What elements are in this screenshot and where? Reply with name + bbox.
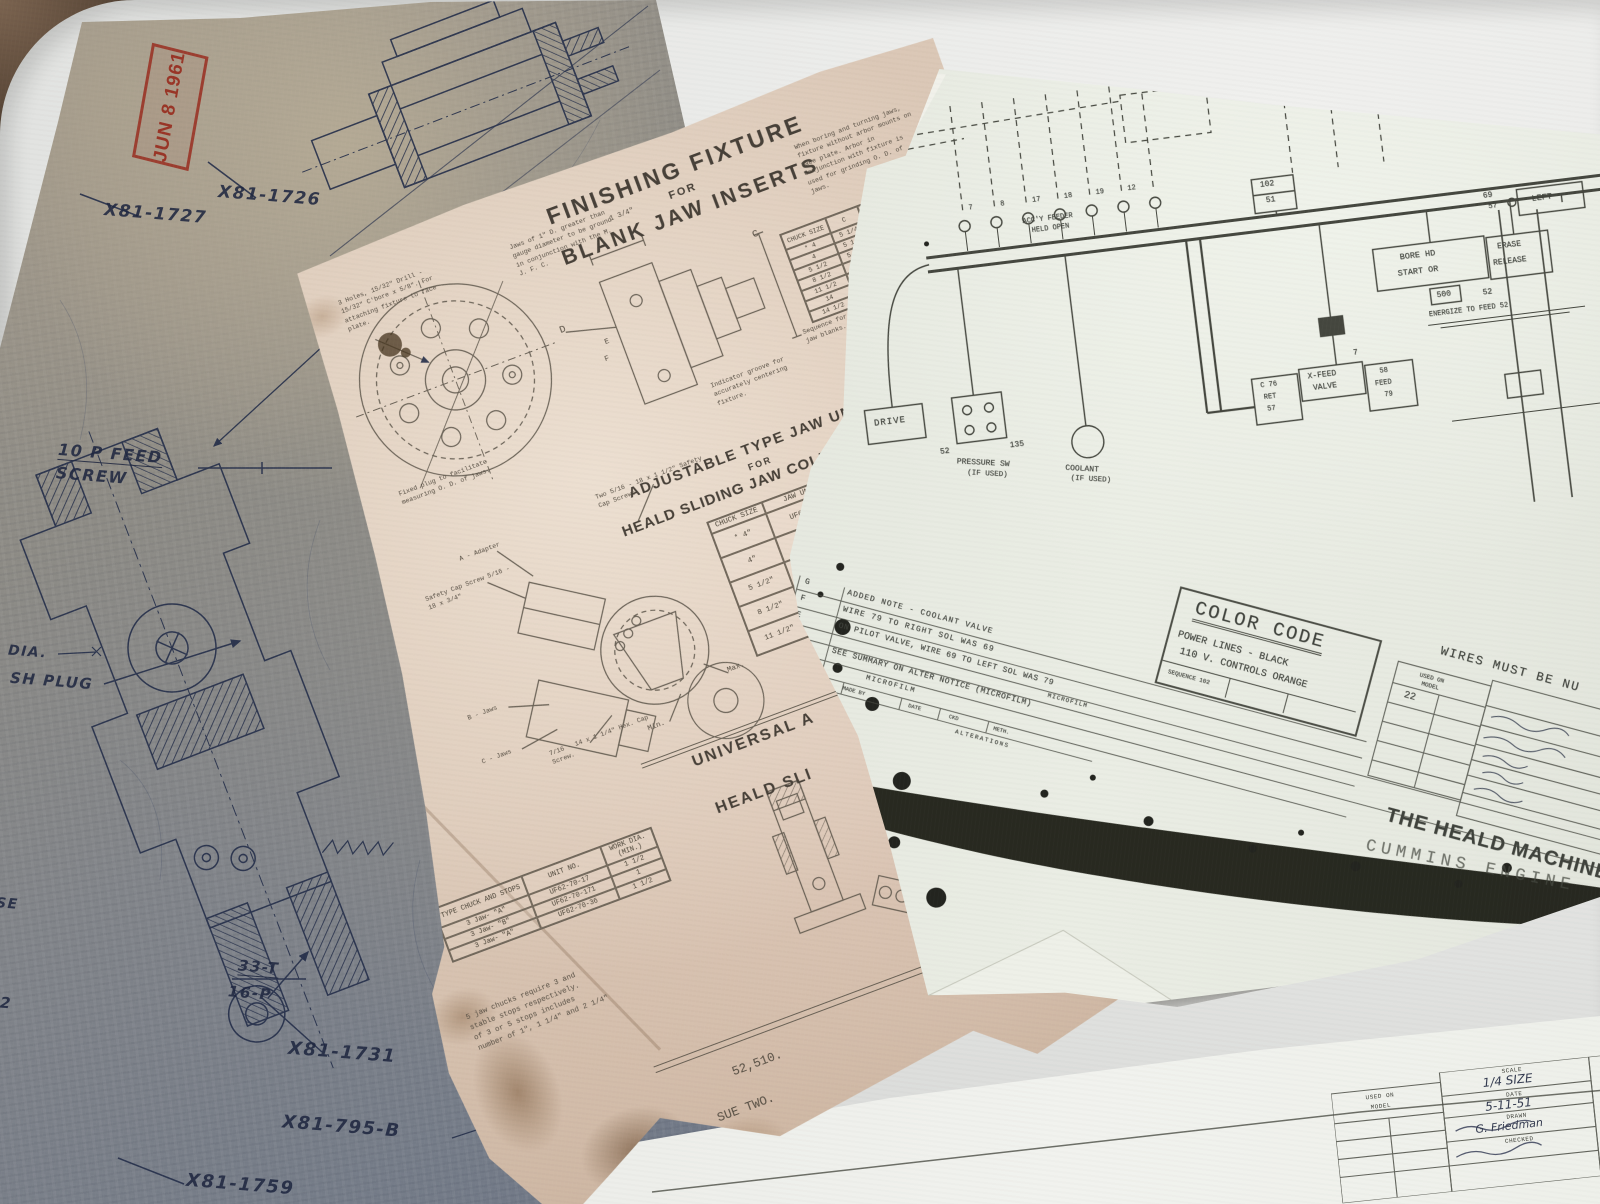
dia-label: DIA. [7, 642, 47, 661]
num-7: 7 [1352, 348, 1358, 358]
num-57: 57 [1488, 202, 1498, 211]
gear-pitch-label: 16-P [227, 982, 272, 1003]
pressure-num-135: 135 [1009, 440, 1024, 451]
xfeed-right-1: 58 [1379, 367, 1388, 376]
xfeed-left-3: 57 [1267, 405, 1276, 414]
gear-teeth-label: 33-T [237, 956, 280, 978]
photo-scene: JUN 8 1961 X81-1726 X81-1727 10 P FEED S… [0, 0, 1600, 1204]
edge-label-2: 2 [0, 994, 13, 1013]
edge-label-se: SE [0, 895, 19, 913]
num-52-right: 52 [1482, 287, 1493, 297]
contact-num-5: 19 [1095, 188, 1104, 197]
box-51: 51 [1265, 195, 1276, 205]
contact-num-6: 12 [1127, 184, 1136, 193]
contact-num-4: 18 [1063, 192, 1072, 201]
box-102: 102 [1259, 179, 1274, 190]
contact-num-3: 17 [1032, 196, 1041, 205]
xfeed-right-3: 79 [1384, 390, 1393, 399]
contact-num-2: 8 [1000, 200, 1005, 208]
pressure-num-52: 52 [939, 447, 950, 457]
xfeed-left-2: RET [1263, 392, 1276, 401]
num-500: 500 [1436, 289, 1451, 300]
num-69: 69 [1482, 191, 1493, 201]
coolant-label-1: COOLANT [1065, 464, 1099, 475]
contact-num-1: 7 [968, 204, 973, 212]
